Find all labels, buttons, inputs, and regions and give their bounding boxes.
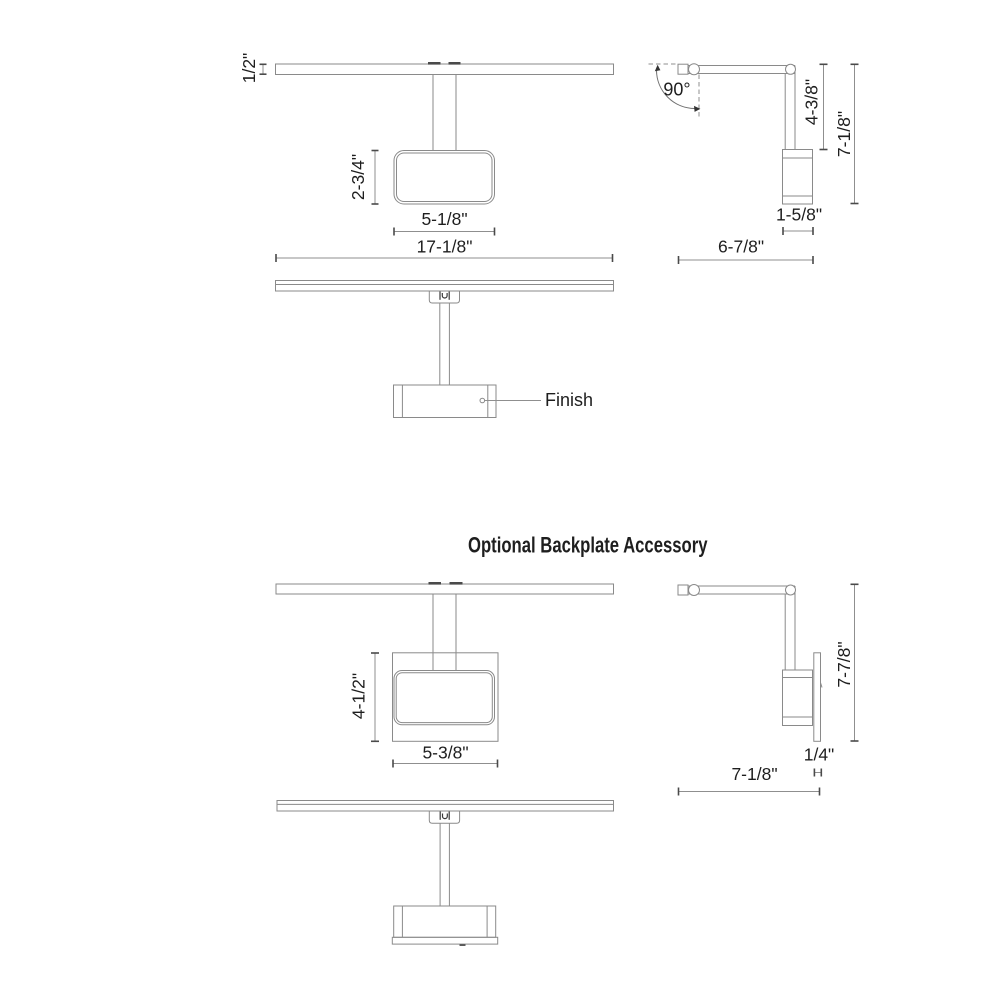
svg-text:2-3/4": 2-3/4" [348, 154, 368, 200]
svg-text:7-7/8": 7-7/8" [834, 641, 854, 687]
svg-text:7-1/8": 7-1/8" [731, 764, 777, 784]
svg-text:6-7/8": 6-7/8" [718, 237, 764, 257]
svg-text:7-1/8": 7-1/8" [834, 111, 854, 157]
svg-text:Optional Backplate Accessory: Optional Backplate Accessory [468, 533, 708, 558]
svg-text:5-1/8": 5-1/8" [421, 209, 467, 229]
svg-text:4-1/2": 4-1/2" [349, 673, 369, 719]
svg-text:17-1/8": 17-1/8" [417, 237, 473, 257]
svg-text:90°: 90° [663, 80, 690, 100]
svg-text:1/2": 1/2" [239, 53, 259, 84]
svg-text:1/4": 1/4" [804, 745, 835, 765]
svg-text:4-3/8": 4-3/8" [802, 79, 822, 125]
svg-text:5-3/8": 5-3/8" [422, 743, 468, 763]
svg-text:Finish: Finish [545, 390, 593, 410]
svg-text:1-5/8": 1-5/8" [776, 205, 822, 225]
